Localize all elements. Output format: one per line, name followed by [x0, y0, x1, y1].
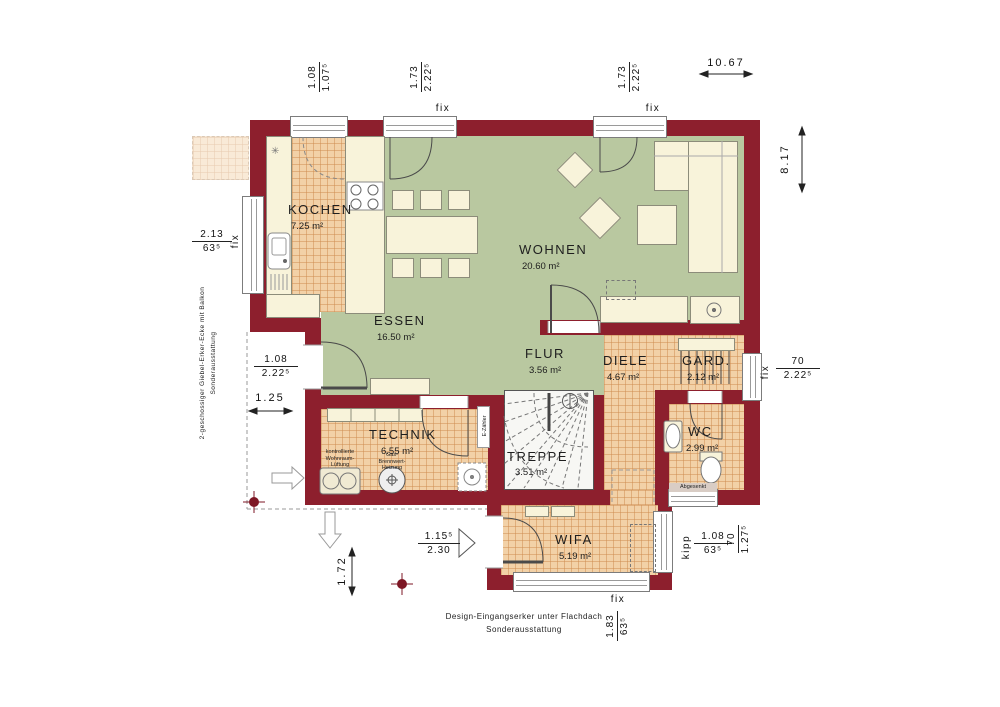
door-opening-essen	[303, 345, 323, 389]
dim-top-window-2: 1.732.22⁵	[406, 55, 436, 99]
cabinet-basin	[690, 296, 740, 324]
wifa-wardrobe-dashed	[630, 524, 656, 572]
wifa-shelf	[525, 506, 549, 517]
sofa-right	[688, 141, 738, 273]
kitchen-counter-right	[345, 136, 385, 314]
dining-chair	[420, 258, 442, 278]
window-type-fix: fix	[430, 103, 456, 114]
wall-stairs-left	[488, 395, 504, 505]
dining-chair	[448, 258, 470, 278]
window-type-fix: fix	[759, 360, 771, 384]
dim-wc-window: 701.27⁵	[723, 517, 753, 561]
dim-porch-depth: 1.72	[334, 549, 350, 593]
snowflake-icon: ✳	[271, 146, 279, 157]
wall-right	[744, 120, 760, 505]
wall-technik-flur	[305, 395, 497, 409]
dim-total-width: 10.67	[698, 57, 754, 69]
sideboard-essen	[370, 378, 430, 395]
dining-table	[386, 216, 478, 254]
room-label-gard: GARD.	[682, 353, 731, 368]
dim-top-window-3: 1.732.22⁵	[614, 55, 644, 99]
window-wifa-right-kipp	[653, 511, 673, 573]
wall-diele-wc	[655, 390, 669, 490]
room-area-wifa: 5.19 m²	[559, 551, 591, 562]
dim-left-door: 1.082.22⁵	[254, 354, 298, 379]
kitchen-counter-bottom	[266, 294, 320, 318]
wall-stairs-right	[594, 395, 604, 490]
window-fix-top-left	[383, 116, 457, 138]
wifa-shelf	[551, 506, 575, 517]
dim-left-offset: 1.25	[246, 392, 294, 404]
room-label-kochen: KOCHEN	[288, 202, 353, 217]
dim-top-window-1: 1.081.07⁵	[304, 55, 334, 99]
label-heating: Gas- Brennwert- Heizung	[370, 452, 414, 472]
room-area-wohnen: 20.60 m²	[522, 261, 560, 272]
note-bottom-sonderausstattung: Design-Eingangserker unter FlachdachSond…	[434, 611, 614, 637]
room-area-wc: 2.99 m²	[686, 443, 718, 454]
window-wifa-bottom	[513, 572, 650, 592]
room-area-diele: 4.67 m²	[607, 372, 639, 383]
window-kochen-left	[242, 196, 264, 294]
door-opening-diele	[548, 321, 600, 333]
wall-step	[250, 318, 321, 332]
floor-plan-canvas: KOCHEN 7.25 m² WOHNEN 20.60 m² ESSEN 16.…	[0, 0, 1000, 707]
room-area-flur: 3.56 m²	[529, 365, 561, 376]
dim-left-window: 2.1363⁵	[192, 229, 232, 254]
room-label-wohnen: WOHNEN	[519, 242, 587, 257]
shelf-technik	[327, 408, 423, 422]
window-fix-top-right	[593, 116, 667, 138]
door-opening-wc	[688, 391, 722, 403]
room-label-flur: FLUR	[525, 346, 565, 361]
room-label-wifa: WIFA	[555, 532, 593, 547]
survey-point	[243, 491, 413, 595]
note-left-sonderausstattung: 2-geschossiger Giebel-Erker-Ecke mit Bal…	[197, 268, 219, 458]
window-type-kipp: kipp	[680, 533, 692, 561]
window-kochen-top	[290, 116, 348, 138]
room-label-treppe: TREPPE	[507, 449, 568, 464]
room-label-diele: DIELE	[603, 353, 648, 368]
label-ventilation: kontrollierte Wohnraum- Lüftung	[316, 449, 364, 469]
dining-chair	[448, 190, 470, 210]
coffee-table	[637, 205, 677, 245]
room-label-essen: ESSEN	[374, 313, 426, 328]
tv-position-dashed	[606, 280, 636, 300]
dim-right-window: 702.22⁵	[776, 356, 820, 381]
dining-chair	[420, 190, 442, 210]
room-area-gard: 2.12 m²	[687, 372, 719, 383]
room-label-technik: TECHNIK	[369, 427, 437, 442]
window-type-fix: fix	[640, 103, 666, 114]
label-electric-meter: E-Zähler	[480, 411, 490, 441]
dining-chair	[392, 190, 414, 210]
passage-diele-wifa	[610, 490, 655, 505]
room-area-essen: 16.50 m²	[377, 332, 415, 343]
label-wc-wall: Abgesenkt	[669, 483, 717, 492]
dim-total-height: 8.17	[777, 137, 793, 181]
sideboard-wohnen	[600, 296, 688, 323]
wardrobe-rail-gard	[678, 338, 735, 351]
balcony-overhang-outline	[192, 136, 249, 180]
room-label-wc: WC	[688, 424, 713, 439]
door-opening-entry	[485, 516, 503, 568]
room-area-kochen: 7.25 m²	[291, 221, 323, 232]
dining-chair	[392, 258, 414, 278]
door-opening-technik	[420, 396, 468, 408]
room-area-treppe: 3.51 m²	[515, 467, 547, 478]
dim-entry-door: 1.15⁵2.30	[418, 531, 460, 556]
